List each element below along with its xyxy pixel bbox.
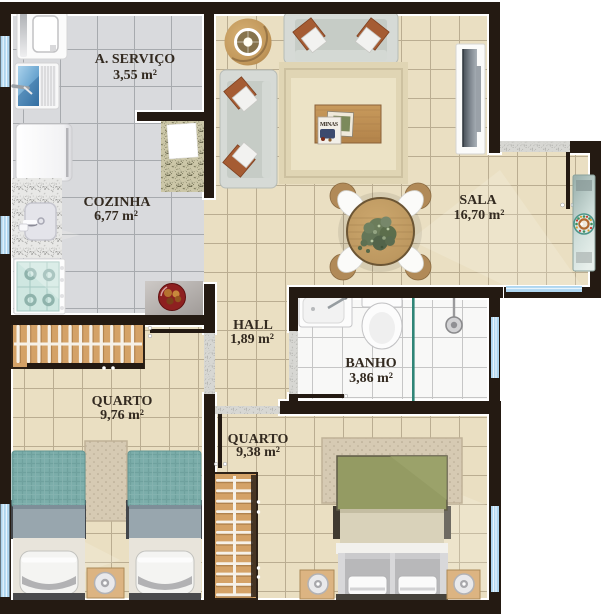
svg-text:A. SERVIÇO: A. SERVIÇO	[95, 52, 176, 67]
svg-text:3,55 m²: 3,55 m²	[113, 68, 157, 83]
svg-text:MINAS: MINAS	[320, 122, 338, 128]
svg-text:COZINHA: COZINHA	[84, 195, 152, 210]
svg-text:HALL: HALL	[233, 318, 273, 333]
svg-text:6,77 m²: 6,77 m²	[94, 209, 138, 224]
svg-text:QUARTO: QUARTO	[92, 394, 153, 409]
svg-text:9,76 m²: 9,76 m²	[100, 408, 144, 423]
svg-text:BANHO: BANHO	[345, 356, 396, 371]
svg-text:9,38 m²: 9,38 m²	[236, 445, 280, 460]
svg-text:16,70 m²: 16,70 m²	[454, 208, 505, 223]
svg-text:1,89 m²: 1,89 m²	[230, 332, 274, 347]
svg-text:3,86 m²: 3,86 m²	[349, 371, 393, 386]
svg-text:SALA: SALA	[459, 193, 497, 208]
